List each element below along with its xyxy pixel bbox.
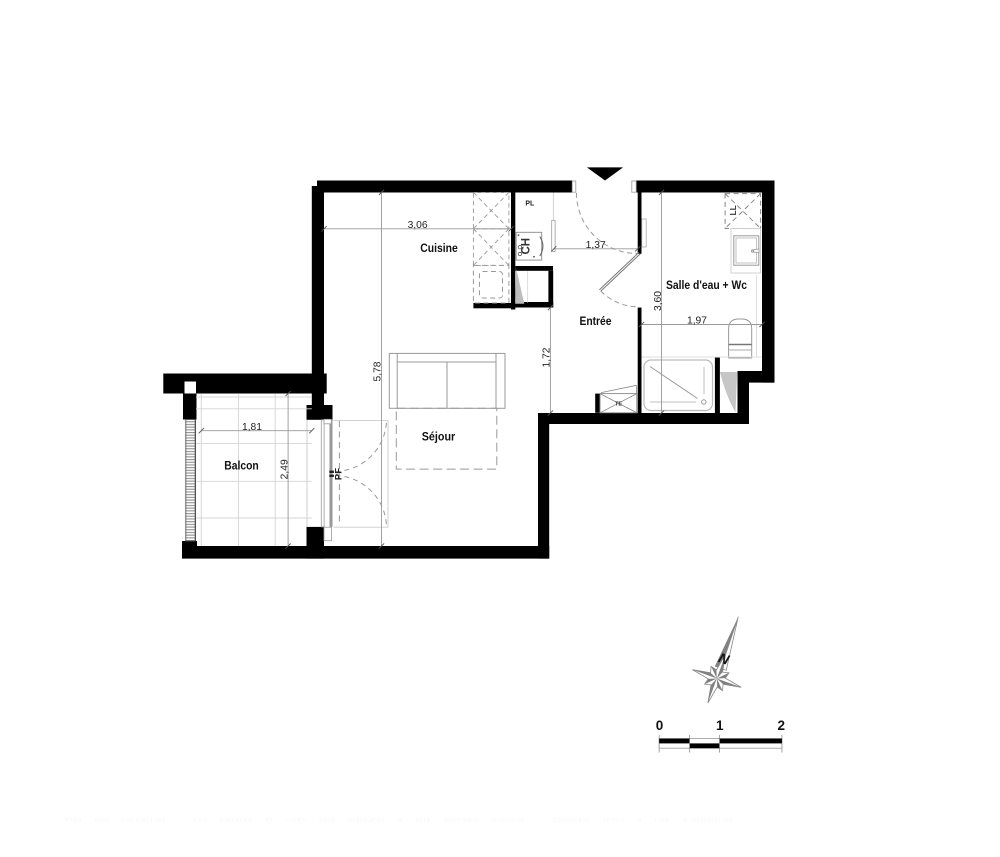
svg-text:1,81: 1,81 (242, 422, 262, 433)
svg-text:Cuisine: Cuisine (420, 241, 458, 255)
svg-text:Balcon: Balcon (224, 458, 259, 472)
svg-text:CH: CH (521, 238, 533, 255)
svg-text:PF: PF (333, 468, 344, 480)
svg-text:Séjour: Séjour (422, 430, 456, 444)
svg-text:Salle d'eau + Wc: Salle d'eau + Wc (666, 278, 747, 292)
svg-text:1,97: 1,97 (687, 316, 707, 327)
svg-text:3,60: 3,60 (653, 291, 664, 311)
svg-text:LL: LL (728, 205, 738, 215)
svg-text:0: 0 (656, 718, 664, 733)
svg-text:Entrée: Entrée (580, 314, 612, 328)
svg-text:1,72: 1,72 (542, 347, 553, 367)
svg-text:1: 1 (716, 718, 724, 733)
svg-text:TE: TE (615, 401, 622, 407)
svg-text:5,78: 5,78 (373, 361, 384, 381)
svg-text:2,49: 2,49 (279, 459, 290, 479)
svg-text:1,37: 1,37 (586, 240, 606, 251)
svg-text:2: 2 (778, 718, 786, 733)
svg-text:PL: PL (525, 201, 535, 208)
svg-text:3,06: 3,06 (408, 220, 428, 231)
svg-text:Plan non contractuel - Les sur: Plan non contractuel - Les surfaces et c… (65, 817, 733, 824)
